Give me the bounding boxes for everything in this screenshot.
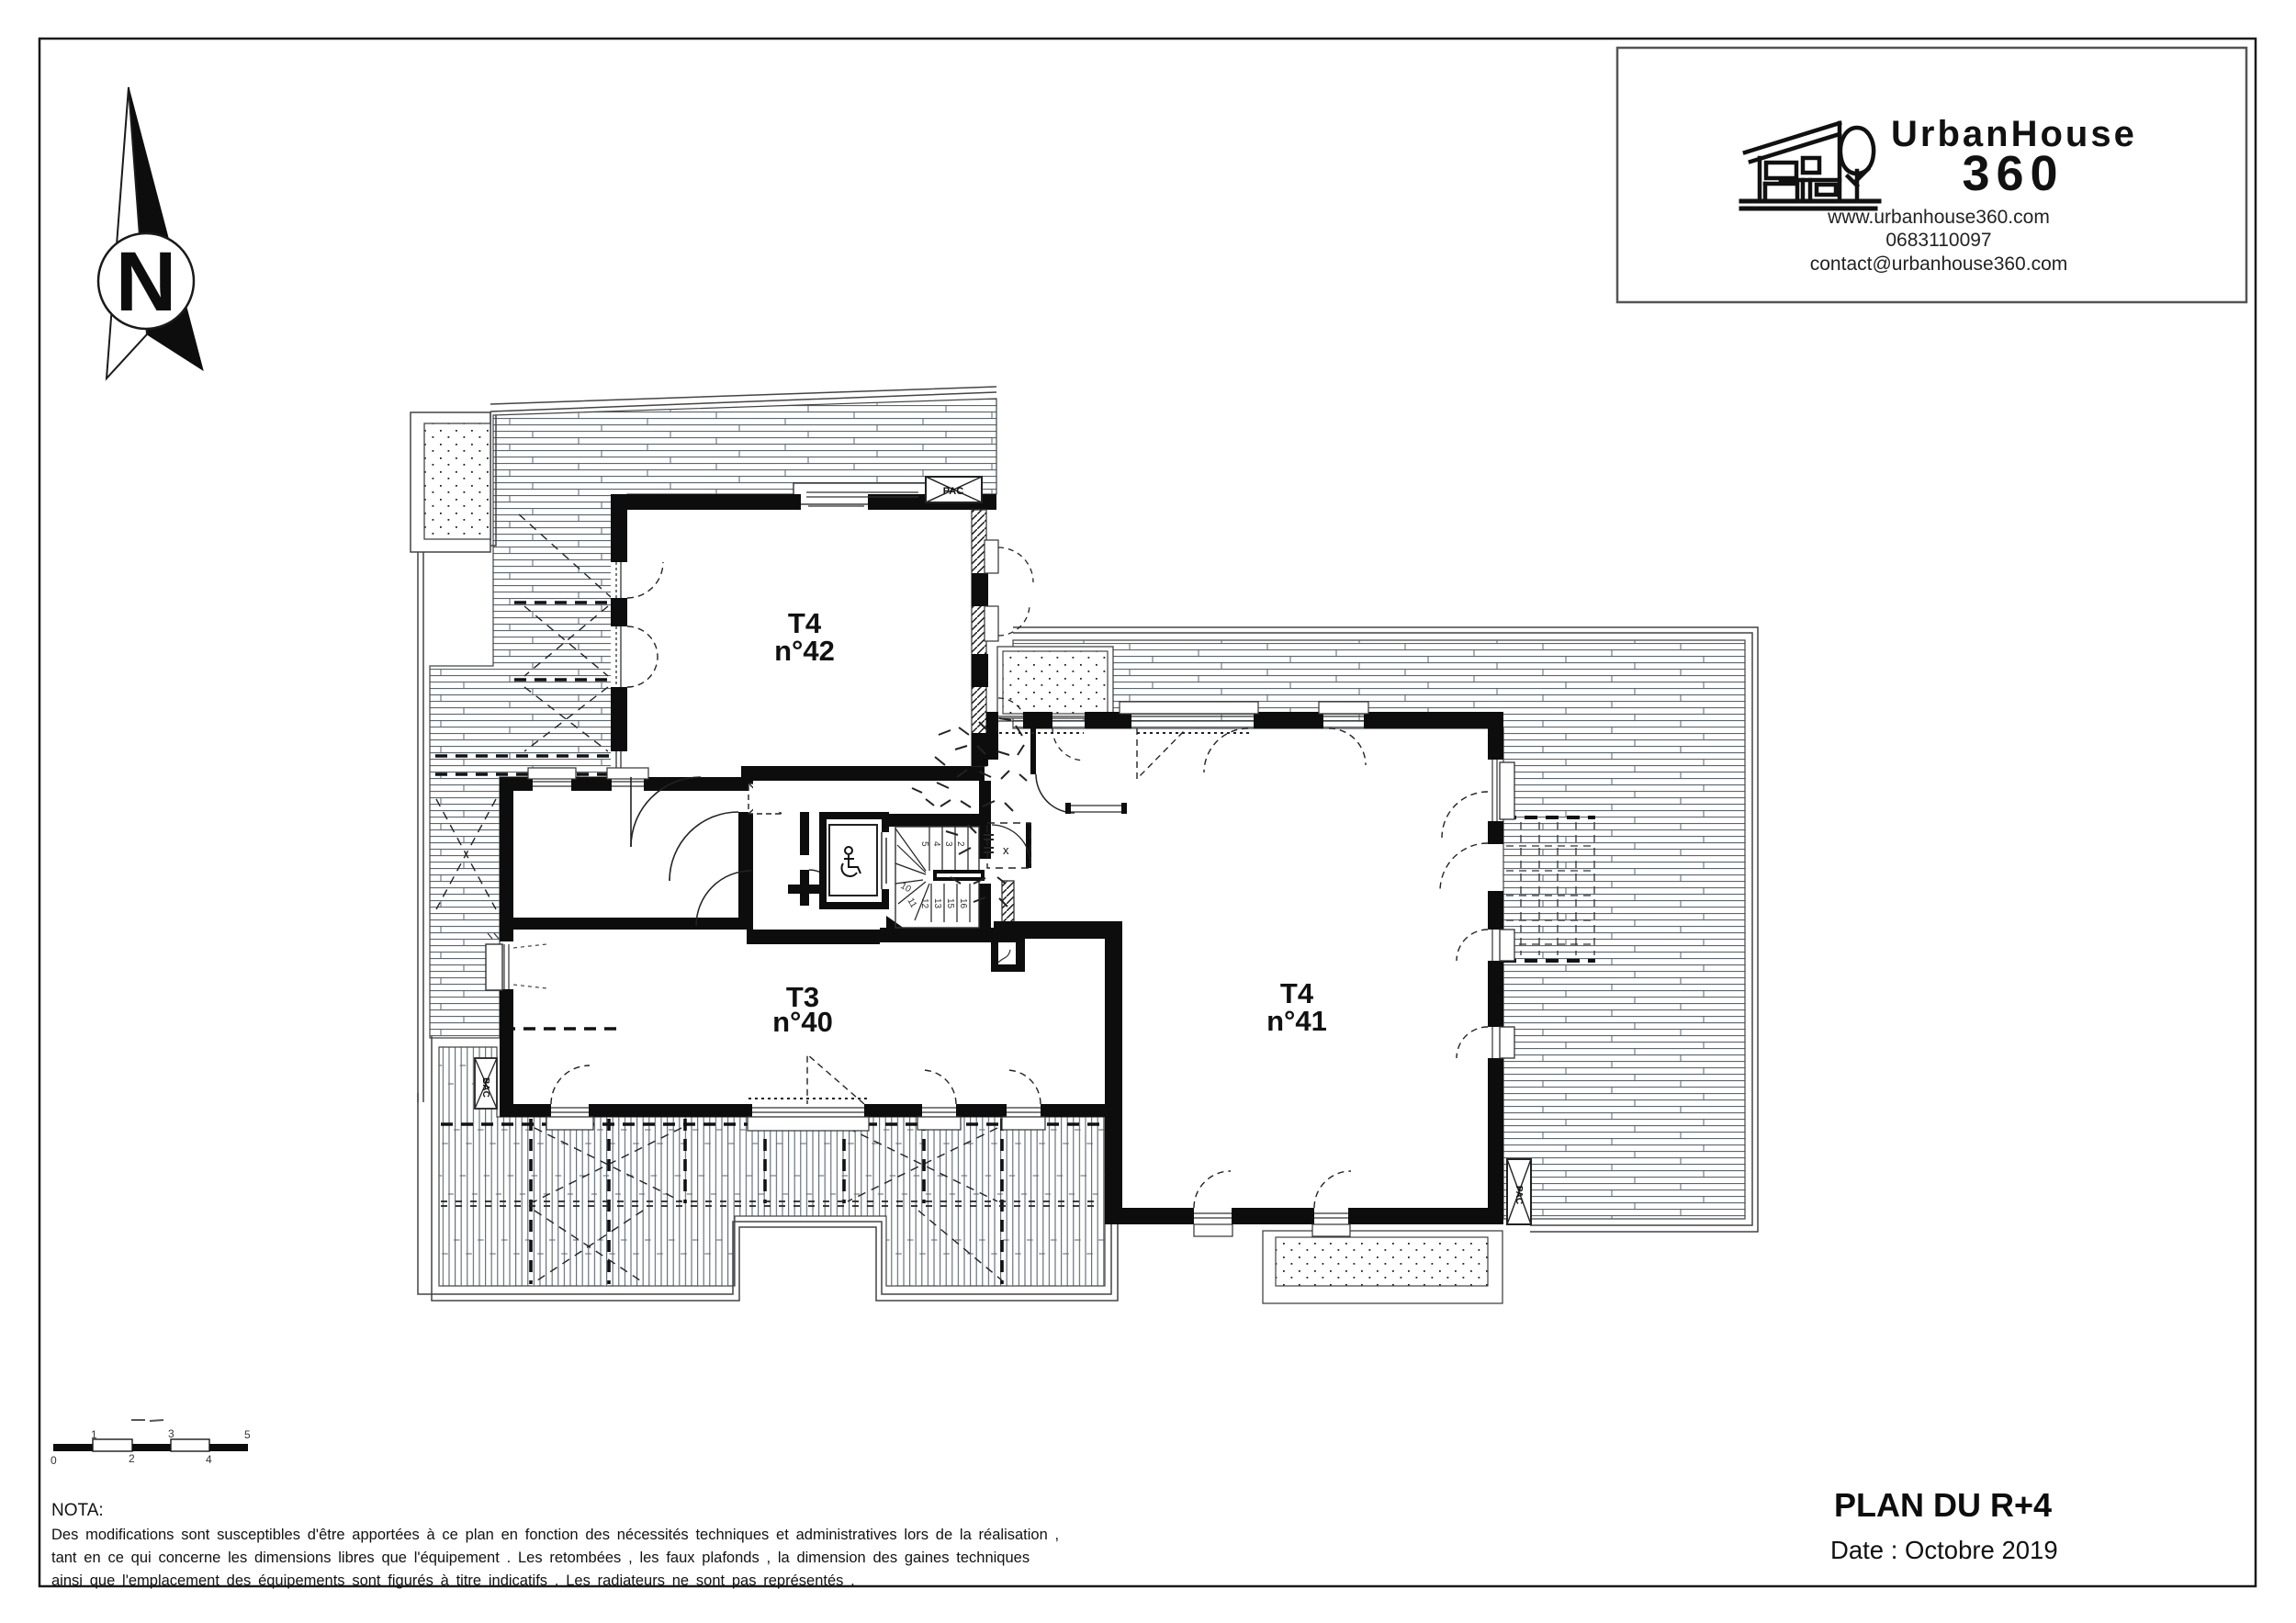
svg-text:4: 4 [931, 841, 941, 847]
svg-text:Des modifications sont susce: Des modifications sont susceptibles d'êt… [51, 1527, 1059, 1543]
svg-text:3: 3 [943, 841, 953, 847]
svg-text:BAC: BAC [480, 1077, 490, 1098]
svg-text:15: 15 [945, 898, 955, 909]
svg-text:NOTA:: NOTA: [51, 1501, 104, 1520]
svg-text:n°40: n°40 [772, 1006, 833, 1038]
svg-text:12: 12 [919, 898, 929, 909]
svg-text:13: 13 [932, 898, 942, 909]
svg-text:2: 2 [955, 841, 965, 847]
svg-text:PAC: PAC [1514, 1186, 1524, 1204]
svg-text:5: 5 [244, 1428, 251, 1441]
svg-text:tant en ce qui concerne l: tant en ce qui concerne les dimensions l… [51, 1550, 1030, 1566]
svg-text:n°42: n°42 [774, 635, 835, 667]
svg-text:PLAN DU R+4: PLAN DU R+4 [1834, 1486, 2052, 1524]
svg-text:ainsi que l'emplacement des: ainsi que l'emplacement des équipements … [51, 1572, 855, 1589]
svg-text:16: 16 [958, 898, 968, 909]
svg-text:contact@urbanhouse360.com: contact@urbanhouse360.com [1810, 254, 2068, 275]
svg-text:N: N [116, 235, 176, 329]
svg-text:0: 0 [51, 1454, 57, 1467]
svg-text:www.urbanhouse360.com: www.urbanhouse360.com [1827, 207, 2050, 228]
svg-text:360: 360 [1962, 146, 2064, 201]
svg-text:4: 4 [206, 1453, 212, 1466]
svg-text:0683110097: 0683110097 [1885, 230, 1991, 251]
svg-text:1: 1 [91, 1428, 97, 1441]
svg-text:x: x [1003, 843, 1009, 857]
svg-text:n°41: n°41 [1266, 1005, 1327, 1037]
svg-text:3: 3 [168, 1427, 174, 1440]
svg-text:Date : Octobre 2019: Date : Octobre 2019 [1830, 1536, 2058, 1564]
svg-text:5: 5 [919, 841, 929, 847]
svg-text:2: 2 [129, 1452, 135, 1465]
svg-text:PAC: PAC [943, 486, 963, 497]
